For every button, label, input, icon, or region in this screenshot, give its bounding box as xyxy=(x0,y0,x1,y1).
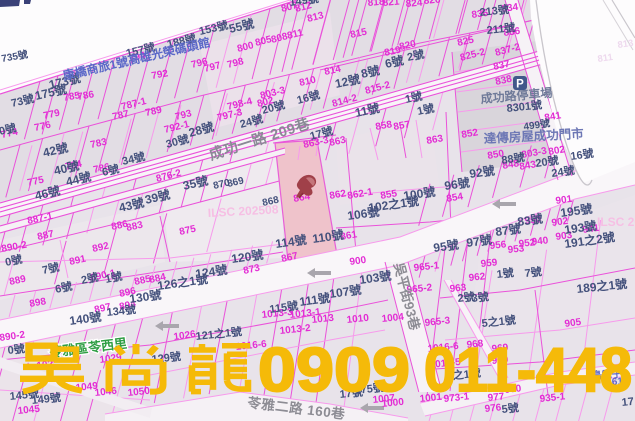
svg-text:824: 824 xyxy=(405,0,423,10)
svg-text:940: 940 xyxy=(531,235,549,248)
svg-text:821: 821 xyxy=(382,0,400,9)
svg-text:811: 811 xyxy=(597,52,614,65)
svg-text:813: 813 xyxy=(617,38,634,51)
svg-text:P: P xyxy=(516,79,524,91)
svg-text:0909: 0909 xyxy=(258,336,410,405)
svg-text:959: 959 xyxy=(480,257,498,270)
svg-text:ILSC 202: ILSC 202 xyxy=(597,215,635,229)
svg-text:962: 962 xyxy=(468,271,486,284)
svg-text:011-448: 011-448 xyxy=(424,336,632,405)
